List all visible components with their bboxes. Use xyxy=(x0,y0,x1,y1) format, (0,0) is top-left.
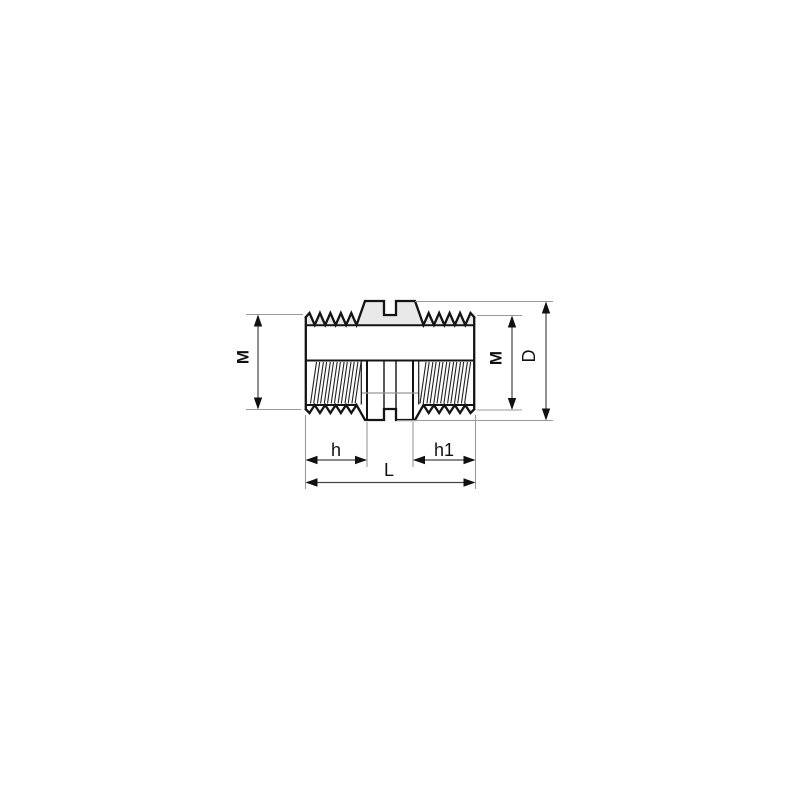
fitting-body xyxy=(305,301,475,420)
thread-hatch-left xyxy=(311,362,362,404)
dimension-m-left xyxy=(246,315,303,410)
dimension-label-m-left: M xyxy=(234,350,253,364)
dimension-label-h: h xyxy=(331,440,341,460)
dimension-label-m-right: M xyxy=(487,351,506,365)
body-outline-bottom xyxy=(305,405,475,420)
thread-hatch-right xyxy=(420,362,471,404)
fitting-technical-drawing: M M D h h1 L xyxy=(0,0,800,800)
dimension-label-d: D xyxy=(519,350,539,363)
dimension-lines xyxy=(246,302,553,490)
dimension-label-h1: h1 xyxy=(434,440,454,460)
drawing-canvas: M M D h h1 L xyxy=(0,0,800,800)
dimension-label-l: L xyxy=(384,460,394,480)
